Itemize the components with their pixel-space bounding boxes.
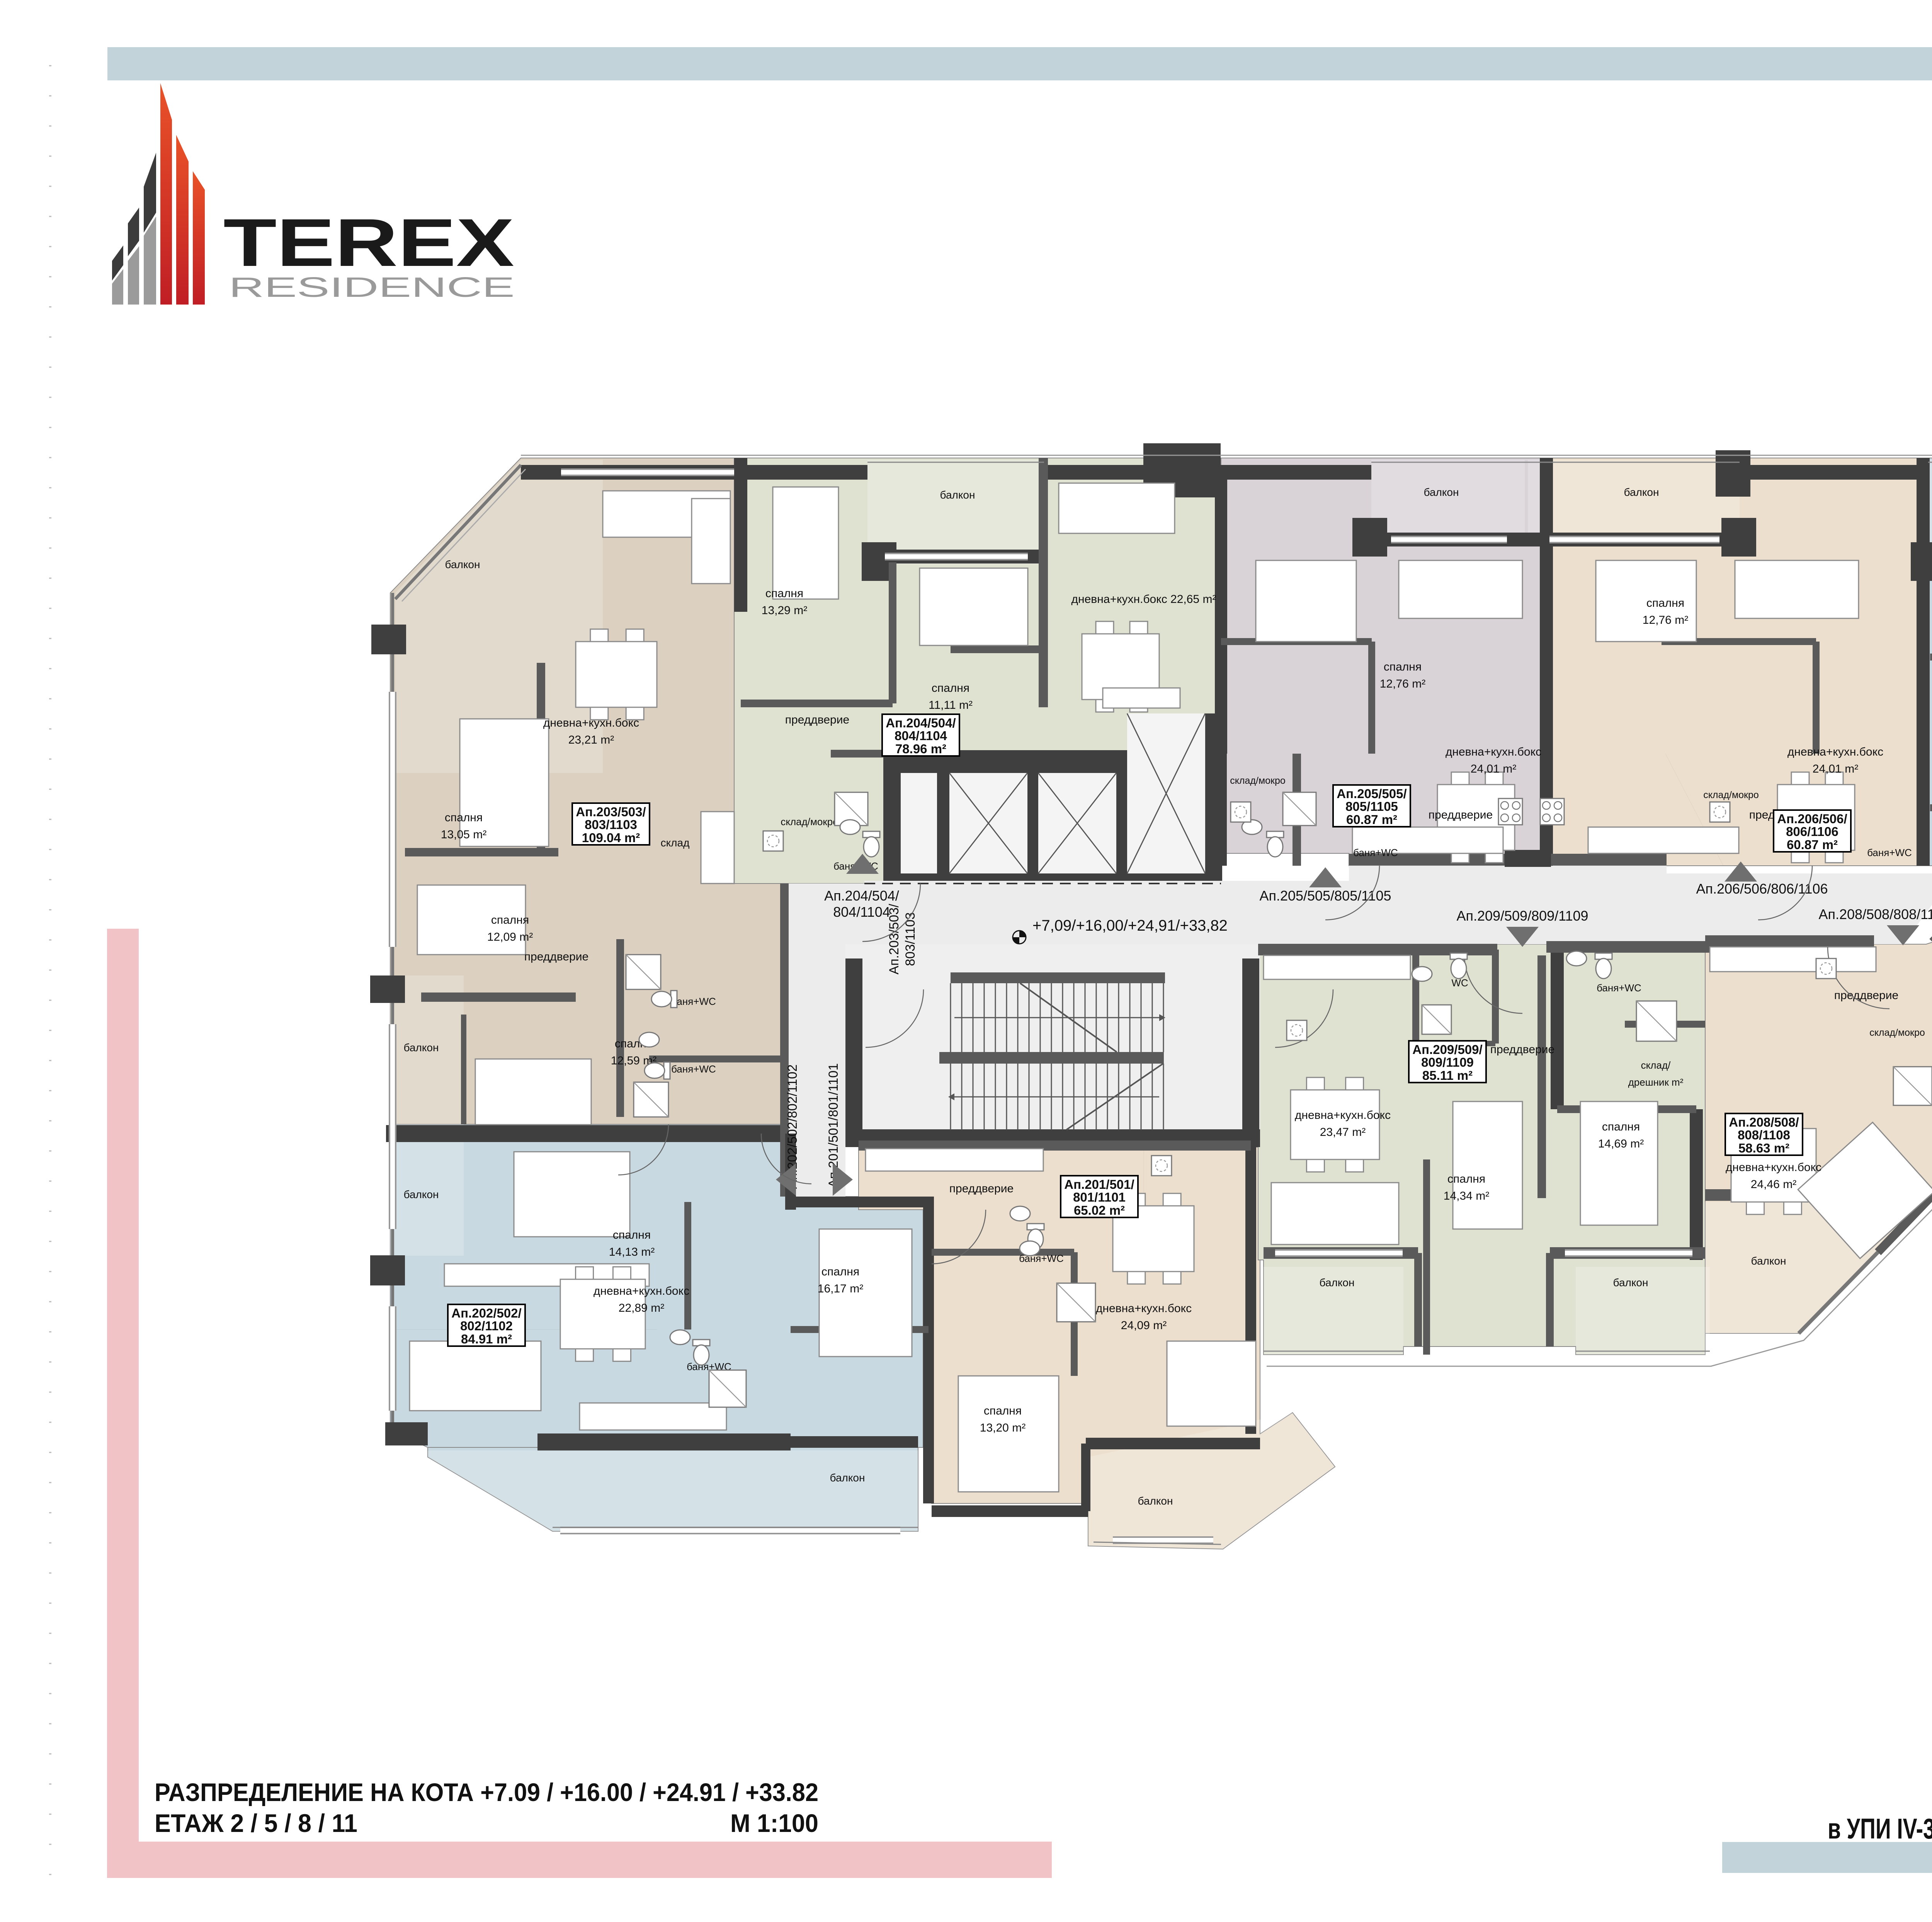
svg-text:преддверие: преддверие	[1490, 1043, 1554, 1056]
svg-text:Ап.205/505/: Ап.205/505/	[1337, 787, 1406, 801]
svg-text:RESIDENCE: RESIDENCE	[229, 272, 515, 303]
svg-text:РАЗПРЕДЕЛЕНИЕ НА КОТА +7.09: РАЗПРЕДЕЛЕНИЕ НА КОТА +7.09 / +16.00 / +…	[155, 1778, 818, 1806]
svg-text:склад/: склад/	[1641, 1059, 1671, 1071]
svg-text:+7,09/+16,00/+24,91/+33,82: +7,09/+16,00/+24,91/+33,82	[1032, 917, 1228, 934]
svg-text:60.87 m²: 60.87 m²	[1346, 812, 1397, 827]
svg-text:14,34 m²: 14,34 m²	[1444, 1190, 1489, 1202]
svg-text:12,09 m²: 12,09 m²	[487, 931, 533, 943]
svg-text:спалня: спалня	[1447, 1173, 1485, 1185]
svg-text:дневна+кухн.бокс: дневна+кухн.бокс	[1096, 1302, 1192, 1315]
svg-text:11,11 m²: 11,11 m²	[929, 699, 973, 712]
svg-text:преддверие: преддверие	[1429, 809, 1493, 821]
svg-text:Ап.203/503/: Ап.203/503/	[576, 805, 646, 819]
svg-text:13,20 m²: 13,20 m²	[980, 1421, 1026, 1434]
svg-text:65.02 m²: 65.02 m²	[1074, 1203, 1125, 1217]
svg-text:13,05 m²: 13,05 m²	[441, 828, 486, 841]
svg-text:дневна+кухн.бокс: дневна+кухн.бокс	[594, 1285, 689, 1297]
svg-text:спалня: спалня	[491, 914, 529, 926]
svg-text:24,01 m²: 24,01 m²	[1813, 763, 1858, 775]
svg-text:балкон: балкон	[404, 1042, 439, 1054]
svg-text:Ап.201/501/: Ап.201/501/	[1064, 1177, 1134, 1192]
svg-text:12,76 m²: 12,76 m²	[1380, 678, 1425, 690]
svg-text:спалня: спалня	[765, 587, 803, 600]
svg-text:109.04 m²: 109.04 m²	[582, 831, 640, 845]
svg-text:склад: склад	[661, 837, 690, 849]
svg-text:801/1101: 801/1101	[1073, 1190, 1126, 1204]
svg-text:804/1104: 804/1104	[833, 904, 890, 920]
svg-text:85.11 m²: 85.11 m²	[1422, 1068, 1473, 1083]
svg-text:балкон: балкон	[445, 558, 480, 570]
svg-text:преддверие: преддверие	[785, 713, 849, 726]
svg-text:803/1103: 803/1103	[903, 912, 918, 966]
svg-text:баня+WC: баня+WC	[671, 1063, 716, 1075]
svg-text:балкон: балкон	[940, 489, 975, 501]
svg-text:склад/мокро: склад/мокро	[781, 816, 838, 827]
svg-text:дневна+кухн.бокс: дневна+кухн.бокс	[1295, 1109, 1391, 1122]
svg-text:спалня: спалня	[613, 1229, 651, 1241]
svg-text:804/1104: 804/1104	[895, 729, 947, 743]
svg-text:ЕТАЖ 2 / 5 / 8 / 11: ЕТАЖ 2 / 5 / 8 / 11	[155, 1809, 357, 1837]
svg-text:спалня: спалня	[445, 811, 483, 824]
svg-text:дневна+кухн.бокс: дневна+кухн.бокс	[1446, 746, 1541, 758]
svg-text:78.96 m²: 78.96 m²	[895, 742, 946, 756]
svg-text:TEREX: TEREX	[223, 205, 514, 281]
svg-text:24,09 m²: 24,09 m²	[1121, 1319, 1167, 1332]
svg-text:Ап.204/504/: Ап.204/504/	[824, 888, 899, 904]
svg-text:спалня: спалня	[821, 1265, 859, 1278]
svg-text:14,13 m²: 14,13 m²	[609, 1246, 655, 1258]
svg-text:спалня: спалня	[1384, 661, 1422, 673]
svg-text:дневна+кухн.бокс: дневна+кухн.бокс	[543, 717, 639, 729]
svg-text:23,21 m²: 23,21 m²	[568, 734, 614, 746]
svg-text:в УПИ IV-353, кв.1, по плана н: в УПИ IV-353, кв.1, по плана на ж.к. "Бр…	[1828, 1813, 1932, 1845]
svg-text:балкон: балкон	[1613, 1277, 1648, 1289]
svg-text:24,46 m²: 24,46 m²	[1751, 1178, 1796, 1191]
svg-text:балкон: балкон	[1138, 1495, 1173, 1507]
svg-text:Ап.208/508/: Ап.208/508/	[1729, 1115, 1799, 1129]
svg-text:балкон: балкон	[1424, 486, 1459, 498]
svg-text:806/1106: 806/1106	[1786, 824, 1838, 839]
svg-text:84.91 m²: 84.91 m²	[461, 1332, 512, 1346]
svg-text:балкон: балкон	[404, 1188, 439, 1200]
svg-text:спалня: спалня	[932, 682, 969, 695]
svg-text:балкон: балкон	[830, 1472, 865, 1484]
svg-text:дневна+кухн.бокс 22,65 m²: дневна+кухн.бокс 22,65 m²	[1071, 593, 1216, 606]
svg-text:Ап.205/505/805/1105: Ап.205/505/805/1105	[1259, 888, 1391, 904]
svg-text:дневна+кухн.бокс: дневна+кухн.бокс	[1787, 746, 1883, 758]
svg-text:баня+WC: баня+WC	[1597, 982, 1641, 994]
svg-text:преддверие: преддверие	[949, 1182, 1014, 1195]
svg-text:Ап.202/502/: Ап.202/502/	[451, 1306, 521, 1320]
svg-text:балкон: балкон	[1751, 1255, 1786, 1267]
svg-text:спалня: спалня	[984, 1404, 1022, 1417]
svg-text:М 1:100: М 1:100	[730, 1809, 818, 1837]
svg-text:склад/мокро: склад/мокро	[1230, 775, 1286, 786]
svg-text:балкон: балкон	[1320, 1277, 1355, 1289]
svg-text:балкон: балкон	[1624, 486, 1659, 498]
svg-text:преддверие: преддверие	[1834, 989, 1898, 1002]
svg-text:дрешник m²: дрешник m²	[1628, 1076, 1684, 1088]
svg-text:Ап.209/509/: Ап.209/509/	[1412, 1042, 1482, 1057]
svg-text:24,01 m²: 24,01 m²	[1471, 763, 1516, 775]
svg-text:Ап.204/504/: Ап.204/504/	[886, 716, 956, 730]
svg-text:60.87 m²: 60.87 m²	[1787, 838, 1838, 852]
svg-text:14,69 m²: 14,69 m²	[1598, 1137, 1644, 1150]
svg-text:Ап.203/503/: Ап.203/503/	[887, 904, 901, 974]
svg-text:13,29 m²: 13,29 m²	[762, 604, 807, 617]
svg-text:803/1103: 803/1103	[585, 817, 637, 832]
svg-text:склад/мокро: склад/мокро	[1869, 1027, 1925, 1038]
svg-text:802/1102: 802/1102	[460, 1319, 513, 1333]
svg-text:баня+WC: баня+WC	[1353, 847, 1398, 858]
svg-text:баня+WC: баня+WC	[1867, 847, 1912, 858]
svg-text:805/1105: 805/1105	[1345, 799, 1398, 814]
svg-text:808/1108: 808/1108	[1738, 1128, 1790, 1142]
svg-text:преддверие: преддверие	[524, 950, 588, 963]
svg-text:спалня: спалня	[1646, 597, 1684, 609]
svg-text:58.63 m²: 58.63 m²	[1738, 1141, 1789, 1155]
svg-text:дневна+кухн.бокс: дневна+кухн.бокс	[1726, 1161, 1821, 1174]
svg-text:16,17 m²: 16,17 m²	[818, 1282, 863, 1295]
svg-text:809/1109: 809/1109	[1421, 1055, 1474, 1069]
svg-text:склад/мокро: склад/мокро	[1703, 790, 1759, 800]
svg-text:Ап.209/509/809/1109: Ап.209/509/809/1109	[1456, 908, 1588, 924]
svg-text:баня+WC: баня+WC	[671, 996, 716, 1007]
svg-text:спалня: спалня	[1602, 1120, 1640, 1133]
svg-text:Ап.208/508/808/1108: Ап.208/508/808/1108	[1818, 906, 1932, 922]
svg-text:12,76 m²: 12,76 m²	[1643, 614, 1688, 626]
svg-text:Ап.206/506/: Ап.206/506/	[1777, 812, 1847, 826]
svg-text:Ап.206/506/806/1106: Ап.206/506/806/1106	[1696, 881, 1828, 897]
svg-text:23,47 m²: 23,47 m²	[1320, 1126, 1366, 1139]
svg-text:22,89 m²: 22,89 m²	[619, 1302, 664, 1314]
